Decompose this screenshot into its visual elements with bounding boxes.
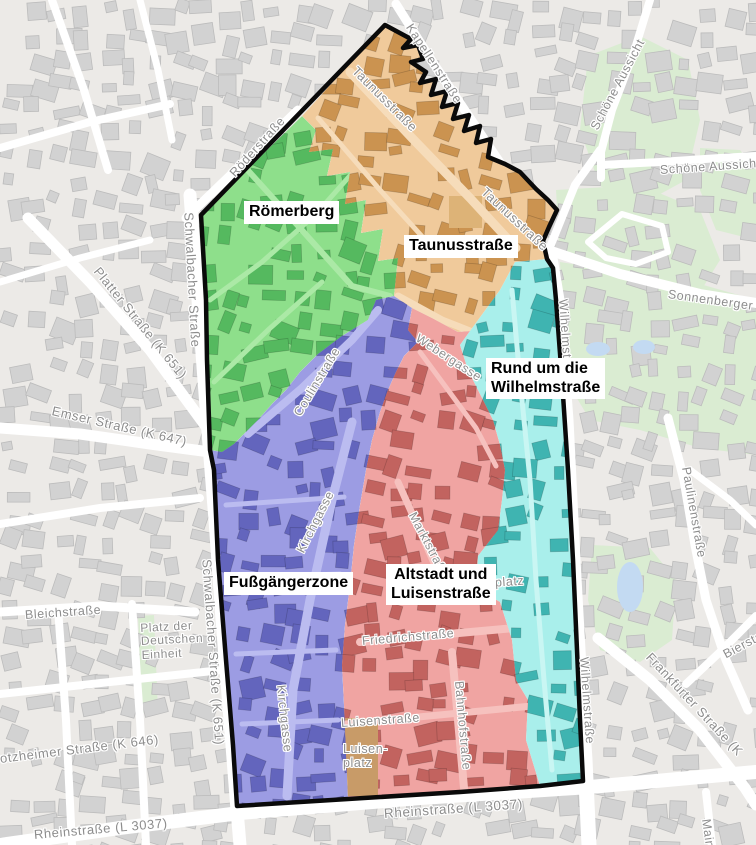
- building: [264, 817, 276, 834]
- building: [1, 652, 21, 672]
- building: [267, 507, 281, 526]
- building: [743, 274, 756, 284]
- building: [262, 290, 285, 301]
- building: [674, 77, 698, 97]
- building: [677, 198, 693, 207]
- building: [164, 557, 179, 576]
- building: [389, 145, 402, 155]
- building: [104, 1, 117, 13]
- building: [628, 1, 641, 15]
- building: [202, 106, 212, 125]
- building: [431, 264, 443, 273]
- building: [748, 2, 756, 21]
- building: [700, 9, 716, 23]
- building: [54, 439, 80, 455]
- building: [554, 466, 564, 479]
- building: [335, 78, 354, 95]
- building: [702, 121, 721, 142]
- building: [34, 801, 55, 812]
- building: [719, 199, 737, 213]
- building: [119, 768, 140, 790]
- building: [80, 342, 92, 358]
- building: [505, 531, 521, 540]
- building: [530, 97, 555, 110]
- building: [604, 748, 616, 757]
- building: [724, 551, 737, 563]
- building: [533, 1, 549, 12]
- building: [250, 776, 266, 793]
- building: [364, 202, 387, 216]
- building: [746, 23, 756, 36]
- building: [703, 315, 719, 326]
- building: [201, 129, 212, 141]
- building: [10, 364, 33, 384]
- building: [679, 59, 689, 70]
- building: [338, 840, 351, 845]
- building: [49, 482, 71, 500]
- building: [271, 49, 282, 65]
- building: [478, 96, 489, 114]
- building: [549, 74, 569, 92]
- building: [194, 795, 220, 809]
- building: [701, 33, 713, 48]
- building: [674, 598, 695, 621]
- building: [263, 338, 289, 353]
- building: [621, 406, 640, 423]
- building: [311, 773, 336, 783]
- building: [21, 628, 42, 644]
- building: [695, 196, 714, 213]
- building: [290, 338, 313, 355]
- building: [101, 123, 119, 140]
- building: [3, 386, 28, 409]
- building: [574, 217, 596, 234]
- building: [103, 50, 125, 66]
- pond: [586, 342, 610, 356]
- building: [361, 410, 376, 430]
- building: [21, 199, 45, 215]
- building: [216, 59, 242, 74]
- building: [654, 344, 668, 354]
- building: [11, 800, 30, 812]
- building: [7, 492, 30, 502]
- building: [191, 23, 215, 46]
- building: [525, 123, 541, 142]
- building: [79, 720, 92, 741]
- building: [72, 198, 86, 217]
- building: [168, 681, 190, 701]
- building: [630, 364, 642, 378]
- building: [651, 321, 670, 338]
- building: [671, 561, 688, 579]
- building: [748, 105, 756, 123]
- building: [172, 461, 189, 476]
- building: [310, 482, 321, 497]
- building: [288, 461, 304, 478]
- building: [728, 443, 746, 460]
- building: [238, 97, 261, 107]
- building: [79, 796, 105, 814]
- building: [165, 31, 190, 55]
- building: [101, 483, 114, 500]
- building: [677, 392, 688, 412]
- building: [195, 150, 216, 168]
- building: [532, 25, 555, 38]
- building: [700, 459, 720, 478]
- building: [716, 46, 737, 62]
- building: [645, 50, 672, 73]
- building: [384, 826, 406, 840]
- building: [243, 27, 267, 48]
- building: [673, 755, 699, 770]
- building: [502, 322, 513, 332]
- building: [671, 580, 696, 601]
- building: [236, 626, 250, 642]
- building: [575, 50, 599, 72]
- building: [263, 7, 279, 18]
- building: [608, 11, 621, 27]
- building: [202, 841, 217, 845]
- building: [271, 31, 291, 44]
- building: [477, 72, 497, 85]
- building: [314, 749, 323, 763]
- building: [1, 441, 12, 451]
- building: [693, 626, 711, 647]
- building: [511, 628, 521, 638]
- building: [221, 203, 235, 221]
- building: [298, 312, 313, 330]
- building: [333, 541, 349, 553]
- building: [141, 251, 166, 263]
- building: [553, 750, 566, 761]
- building: [476, 322, 488, 334]
- building: [71, 177, 88, 192]
- building: [505, 505, 527, 527]
- building: [0, 407, 15, 424]
- building: [294, 130, 313, 147]
- building: [510, 266, 521, 280]
- building: [142, 388, 162, 409]
- building: [657, 728, 669, 739]
- building: [150, 535, 170, 548]
- pond: [633, 340, 655, 354]
- building: [651, 465, 673, 477]
- building: [725, 365, 735, 385]
- building: [147, 766, 163, 785]
- building: [121, 576, 142, 596]
- building: [531, 145, 556, 163]
- building: [285, 556, 303, 569]
- building: [335, 552, 349, 568]
- building: [150, 753, 164, 764]
- building: [22, 529, 45, 548]
- building: [633, 82, 650, 91]
- building: [79, 224, 97, 240]
- building: [0, 124, 16, 134]
- building: [217, 225, 231, 245]
- building: [314, 290, 331, 310]
- building: [633, 194, 654, 215]
- building: [741, 319, 756, 330]
- building: [364, 132, 387, 151]
- building: [512, 458, 537, 478]
- building: [103, 538, 113, 554]
- building: [28, 311, 45, 328]
- building: [316, 35, 342, 46]
- building: [100, 339, 118, 360]
- building: [740, 222, 756, 241]
- building: [149, 8, 175, 25]
- building: [123, 71, 134, 85]
- building: [366, 336, 385, 354]
- building: [173, 748, 191, 766]
- building: [653, 200, 668, 215]
- building: [609, 131, 636, 150]
- building: [24, 96, 39, 111]
- building: [551, 684, 566, 693]
- building: [655, 72, 674, 93]
- building: [261, 555, 286, 567]
- building: [178, 99, 193, 116]
- building: [597, 200, 607, 211]
- building: [724, 78, 748, 90]
- building: [693, 432, 720, 450]
- building: [583, 12, 601, 24]
- building: [238, 698, 252, 711]
- building: [580, 537, 594, 557]
- building: [26, 36, 40, 49]
- building: [165, 194, 179, 206]
- building: [118, 95, 141, 106]
- building: [57, 535, 74, 547]
- building: [191, 178, 210, 190]
- building: [175, 338, 187, 352]
- building: [679, 100, 698, 110]
- building: [501, 600, 512, 611]
- building: [649, 530, 669, 548]
- building: [696, 72, 723, 94]
- building: [291, 244, 301, 262]
- building: [99, 583, 119, 602]
- building: [106, 34, 124, 49]
- building: [550, 539, 568, 552]
- building: [678, 366, 691, 378]
- building: [654, 841, 680, 845]
- building: [313, 441, 335, 450]
- building: [506, 73, 519, 89]
- building: [3, 173, 14, 185]
- building: [647, 291, 662, 310]
- building: [260, 623, 285, 646]
- building: [121, 383, 143, 399]
- building: [219, 12, 241, 30]
- building: [129, 121, 141, 134]
- building: [725, 8, 747, 30]
- building: [50, 144, 68, 162]
- building: [648, 99, 676, 123]
- building: [241, 0, 255, 21]
- building: [100, 364, 118, 385]
- building: [600, 412, 622, 435]
- building: [649, 482, 673, 506]
- building: [7, 84, 33, 97]
- building: [632, 792, 647, 808]
- building: [504, 479, 523, 498]
- building: [553, 651, 571, 670]
- building: [731, 271, 743, 286]
- building: [607, 725, 622, 740]
- building: [318, 51, 329, 68]
- building: [723, 335, 735, 353]
- building: [173, 170, 183, 182]
- building: [189, 0, 212, 14]
- building: [676, 658, 696, 670]
- building: [72, 6, 88, 28]
- building: [648, 359, 658, 376]
- building: [740, 52, 756, 75]
- building: [622, 489, 635, 500]
- building: [533, 416, 557, 427]
- building: [368, 0, 386, 12]
- building: [417, 101, 440, 116]
- building: [243, 490, 259, 511]
- building: [319, 176, 336, 186]
- building: [73, 30, 88, 50]
- building: [504, 29, 517, 45]
- building: [45, 337, 63, 350]
- building: [559, 23, 574, 42]
- building: [239, 513, 259, 529]
- building: [723, 245, 739, 261]
- building: [145, 581, 165, 596]
- building: [21, 555, 42, 569]
- building: [50, 290, 65, 305]
- building: [463, 32, 475, 47]
- building: [27, 2, 47, 21]
- building: [188, 755, 206, 772]
- building: [99, 609, 119, 630]
- building: [719, 586, 734, 605]
- building: [480, 335, 504, 347]
- building: [584, 323, 604, 345]
- building: [241, 80, 265, 100]
- building: [102, 83, 116, 92]
- building: [0, 248, 12, 262]
- building: [703, 506, 727, 519]
- pond: [617, 562, 643, 612]
- building: [597, 555, 615, 570]
- building: [94, 633, 107, 645]
- building: [680, 415, 698, 431]
- building: [382, 173, 409, 194]
- building: [531, 827, 553, 838]
- building: [314, 825, 330, 841]
- building: [165, 510, 184, 521]
- building: [629, 841, 640, 845]
- building: [103, 222, 119, 239]
- building: [287, 271, 304, 280]
- building: [119, 203, 143, 214]
- building: [27, 149, 42, 168]
- map-canvas[interactable]: KapellenstraßeTaunusstraßeTaunusstraßeRö…: [0, 0, 756, 845]
- building: [649, 392, 665, 411]
- building: [626, 635, 645, 648]
- building: [599, 514, 610, 524]
- building: [74, 319, 93, 337]
- building: [342, 385, 362, 406]
